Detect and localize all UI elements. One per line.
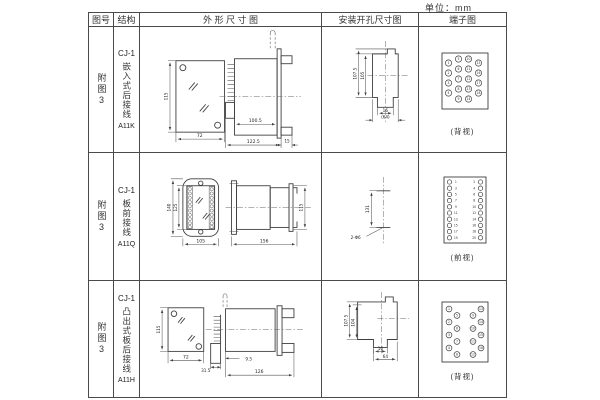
row3-terminal-diagram: 12345678910111213141516 (背视) xyxy=(419,281,506,397)
svg-text:9: 9 xyxy=(454,204,456,208)
svg-text:8: 8 xyxy=(457,87,459,91)
svg-text:6: 6 xyxy=(457,67,459,71)
svg-text:2: 2 xyxy=(473,180,475,184)
row1-mounting-diagram: 107.5 105 16 (64) xyxy=(322,27,419,153)
svg-text:6: 6 xyxy=(456,327,458,331)
svg-text:19: 19 xyxy=(453,235,457,239)
svg-text:105: 105 xyxy=(360,71,365,79)
row1-mounting-svg: 107.5 105 16 (64) xyxy=(322,27,418,152)
row2-front-view: 140 125 105 xyxy=(166,179,218,246)
svg-text:12: 12 xyxy=(471,353,475,357)
row3-front-view: 115 72 xyxy=(156,307,204,363)
spec-table: 图号 结构 外 形 尺 寸 图 安装开孔尺寸图 端子图 附图3 CJ-1 嵌入式… xyxy=(88,12,507,398)
svg-text:115: 115 xyxy=(156,325,161,333)
row1-code: A11K xyxy=(118,123,135,130)
row1-terminal-svg: 123456789101112131415161718 xyxy=(420,43,506,123)
svg-text:18: 18 xyxy=(472,229,476,233)
row3-side-view: 9.5 31.5 126 xyxy=(201,293,303,376)
svg-text:4: 4 xyxy=(447,91,449,95)
row2-figure-no: 附图3 xyxy=(89,153,114,281)
svg-text:2: 2 xyxy=(447,71,449,75)
row3-mounting-svg: 107.5 104 16 64 xyxy=(322,282,418,397)
svg-text:13: 13 xyxy=(466,87,470,91)
row2-structure: CJ-1 板前接线 A11Q xyxy=(114,153,140,281)
row2-terminal-diagram: 1357911131517192468101214161820 (前视) xyxy=(419,153,506,281)
header-mounting-dims: 安装开孔尺寸图 xyxy=(322,13,419,27)
row2-outline-svg: 140 125 105 156 115 xyxy=(140,153,321,280)
row1-outline-diagram: 115 72 100.5 122.5 xyxy=(140,27,322,153)
row1-terminal-diagram: 123456789101112131415161718 (背视) xyxy=(419,27,506,153)
svg-text:7: 7 xyxy=(456,340,458,344)
svg-text:14: 14 xyxy=(472,217,476,221)
svg-text:100.5: 100.5 xyxy=(249,118,262,124)
svg-text:13: 13 xyxy=(453,217,457,221)
svg-text:31.5: 31.5 xyxy=(201,368,211,373)
row2-view-label: (前视) xyxy=(451,252,475,263)
svg-text:10: 10 xyxy=(466,57,470,61)
row1-view-label: (背视) xyxy=(451,126,475,137)
svg-text:10: 10 xyxy=(472,204,476,208)
row1-structure: CJ-1 嵌入式后接线 A11K xyxy=(114,27,140,153)
svg-text:4: 4 xyxy=(448,346,450,350)
svg-text:122.5: 122.5 xyxy=(247,139,260,145)
svg-text:20: 20 xyxy=(472,235,476,239)
svg-text:13: 13 xyxy=(479,307,483,311)
svg-text:17: 17 xyxy=(476,81,480,85)
row1-side-view: 100.5 122.5 15 xyxy=(220,30,301,148)
svg-text:15: 15 xyxy=(453,223,457,227)
svg-text:3: 3 xyxy=(454,186,456,190)
row3-terminal-circles: 12345678910111213141516 xyxy=(446,306,484,357)
svg-text:115: 115 xyxy=(164,92,169,100)
svg-text:16: 16 xyxy=(472,223,476,227)
row3-view-label: (背视) xyxy=(451,371,475,382)
svg-text:9.5: 9.5 xyxy=(245,356,252,361)
svg-text:7: 7 xyxy=(454,198,456,202)
svg-text:8: 8 xyxy=(473,198,475,202)
svg-text:3: 3 xyxy=(447,81,449,85)
row3-code: A11H xyxy=(118,377,135,384)
svg-text:5: 5 xyxy=(454,192,456,196)
svg-text:16: 16 xyxy=(378,345,384,350)
svg-text:2: 2 xyxy=(448,320,450,324)
row3-model: CJ-1 xyxy=(118,294,135,303)
svg-text:5: 5 xyxy=(456,314,458,318)
row2-mounting-diagram: 131 2-Φ6 xyxy=(322,153,419,281)
row3-structure: CJ-1 凸出式板后接线 A11H xyxy=(114,281,140,397)
row2-type: 板前接线 xyxy=(122,199,131,237)
row1-outline-svg: 115 72 100.5 122.5 xyxy=(140,27,321,152)
row2-code: A11Q xyxy=(118,241,135,248)
row2-model: CJ-1 xyxy=(118,186,135,195)
svg-text:16: 16 xyxy=(479,346,483,350)
svg-text:115: 115 xyxy=(299,203,304,211)
svg-text:64: 64 xyxy=(383,353,389,358)
header-figure-no: 图号 xyxy=(89,13,114,27)
svg-text:1: 1 xyxy=(448,307,450,311)
svg-text:7: 7 xyxy=(457,77,459,81)
row3-figure-no: 附图3 xyxy=(89,281,114,397)
svg-text:72: 72 xyxy=(197,133,203,139)
svg-text:8: 8 xyxy=(456,353,458,357)
row2-terminal-circles: 1357911131517192468101214161820 xyxy=(447,179,482,239)
svg-text:11: 11 xyxy=(471,340,475,344)
row3-terminal-svg: 12345678910111213141516 xyxy=(420,296,506,368)
row3-mounting-diagram: 107.5 104 16 64 xyxy=(322,281,419,397)
svg-text:(64): (64) xyxy=(381,115,390,120)
row1-type: 嵌入式后接线 xyxy=(122,62,131,119)
svg-text:14: 14 xyxy=(479,320,483,324)
svg-text:140: 140 xyxy=(166,203,171,211)
svg-text:15: 15 xyxy=(479,333,483,337)
svg-text:126: 126 xyxy=(255,369,264,375)
svg-text:72: 72 xyxy=(183,354,189,360)
row3-type: 凸出式板后接线 xyxy=(122,307,131,374)
svg-text:6: 6 xyxy=(473,192,475,196)
row1-terminal-circles: 123456789101112131415161718 xyxy=(445,55,481,101)
svg-text:12: 12 xyxy=(466,77,470,81)
row1-figure-no: 附图3 xyxy=(89,27,114,153)
svg-text:125: 125 xyxy=(173,203,178,211)
svg-text:9: 9 xyxy=(472,314,474,318)
row2-mounting-svg: 131 2-Φ6 xyxy=(322,153,418,280)
header-outline-dims: 外 形 尺 寸 图 xyxy=(140,13,322,27)
row3-outline-diagram: 115 72 9.5 31.5 xyxy=(140,281,322,397)
svg-text:2-Φ6: 2-Φ6 xyxy=(351,235,361,240)
svg-text:9: 9 xyxy=(457,97,459,101)
svg-text:17: 17 xyxy=(453,229,457,233)
svg-text:14: 14 xyxy=(466,97,470,101)
svg-text:16: 16 xyxy=(476,71,480,75)
header-structure: 结构 xyxy=(114,13,140,27)
row1-front-view: 115 72 xyxy=(164,61,225,142)
row2-terminal-svg: 1357911131517192468101214161820 xyxy=(420,171,506,249)
row2-front-terminals xyxy=(188,188,213,229)
svg-text:4: 4 xyxy=(473,186,475,190)
svg-text:10: 10 xyxy=(471,327,475,331)
svg-text:131: 131 xyxy=(365,205,370,213)
svg-text:11: 11 xyxy=(453,211,457,215)
row3-outline-svg: 115 72 9.5 31.5 xyxy=(140,282,321,397)
svg-text:156: 156 xyxy=(260,238,269,244)
svg-text:1: 1 xyxy=(447,61,449,65)
row2-side-view: 156 115 xyxy=(226,181,311,246)
svg-text:11: 11 xyxy=(466,67,470,71)
svg-text:1: 1 xyxy=(454,180,456,184)
svg-text:107.5: 107.5 xyxy=(344,314,349,326)
svg-text:5: 5 xyxy=(457,57,459,61)
svg-text:16: 16 xyxy=(383,108,389,113)
row1-model: CJ-1 xyxy=(118,49,135,58)
svg-text:105: 105 xyxy=(196,238,205,244)
svg-text:15: 15 xyxy=(284,139,290,144)
svg-text:107.5: 107.5 xyxy=(353,67,358,79)
svg-text:12: 12 xyxy=(472,211,476,215)
header-terminal-diagram: 端子图 xyxy=(419,13,506,27)
row2-outline-diagram: 140 125 105 156 115 xyxy=(140,153,322,281)
svg-text:18: 18 xyxy=(476,91,480,95)
svg-text:3: 3 xyxy=(448,333,450,337)
svg-text:104: 104 xyxy=(351,318,356,326)
svg-text:15: 15 xyxy=(476,61,480,65)
